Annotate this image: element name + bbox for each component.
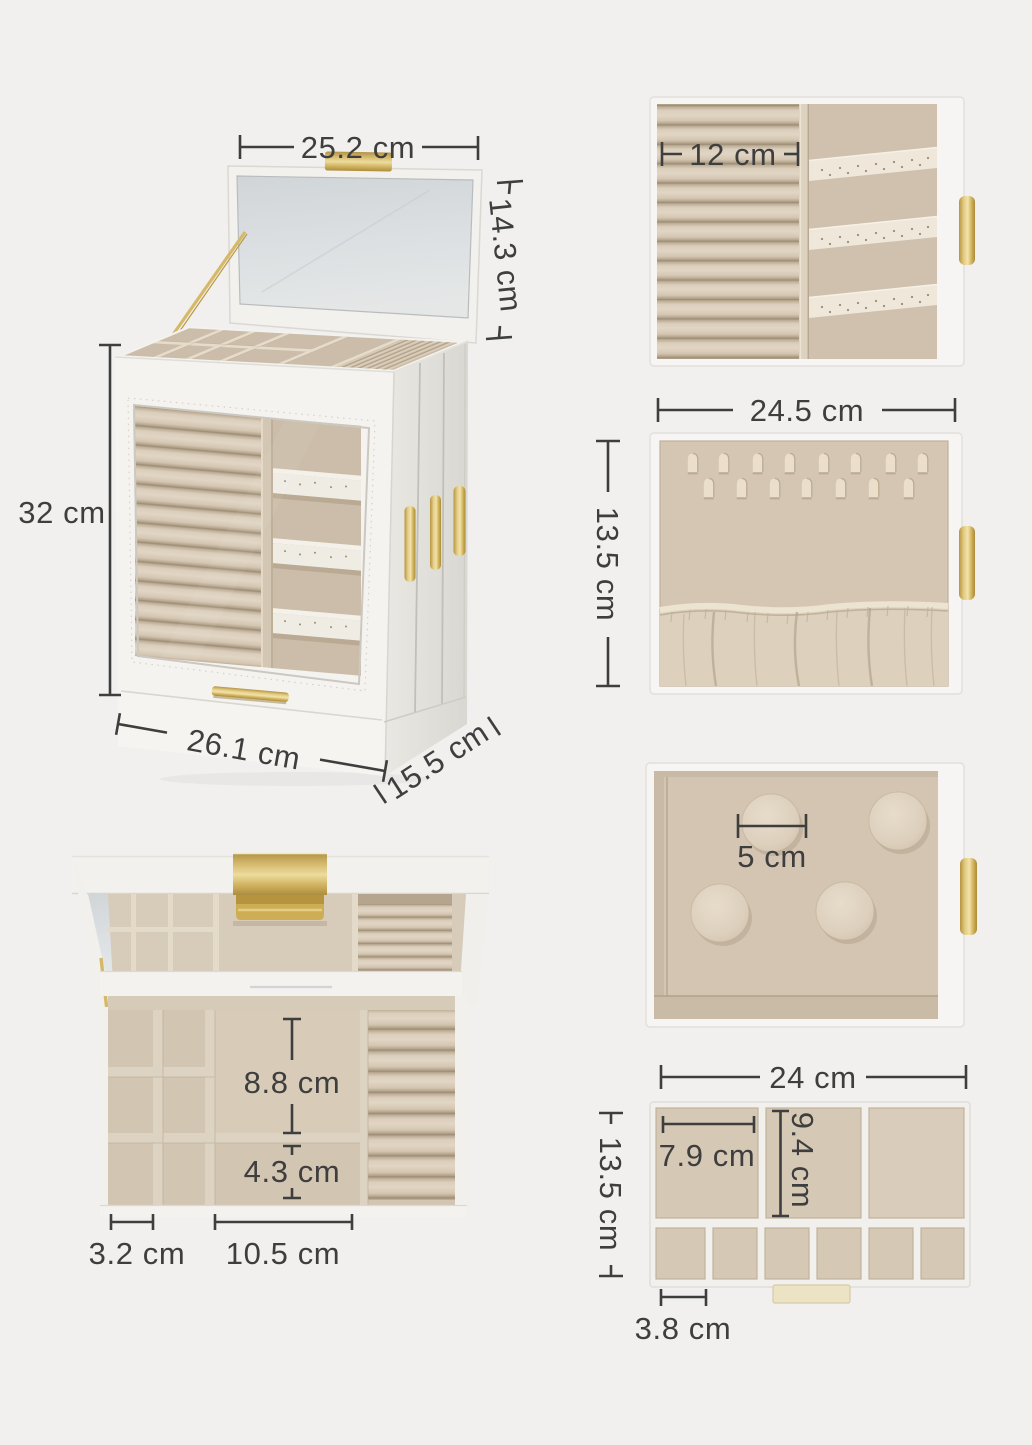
svg-text:24.5 cm: 24.5 cm bbox=[750, 393, 864, 428]
svg-text:32 cm: 32 cm bbox=[18, 495, 105, 530]
svg-text:8.8 cm: 8.8 cm bbox=[244, 1065, 341, 1100]
svg-text:13.5 cm: 13.5 cm bbox=[593, 1137, 628, 1251]
svg-text:7.9 cm: 7.9 cm bbox=[659, 1138, 756, 1173]
svg-text:9.4 cm: 9.4 cm bbox=[785, 1112, 820, 1209]
svg-text:24 cm: 24 cm bbox=[769, 1060, 856, 1095]
svg-text:10.5 cm: 10.5 cm bbox=[226, 1236, 340, 1271]
svg-text:4.3 cm: 4.3 cm bbox=[244, 1154, 341, 1189]
svg-text:25.2 cm: 25.2 cm bbox=[301, 130, 415, 165]
svg-text:3.8 cm: 3.8 cm bbox=[635, 1311, 732, 1346]
svg-text:5 cm: 5 cm bbox=[737, 839, 807, 874]
svg-text:12 cm: 12 cm bbox=[689, 137, 776, 172]
svg-text:13.5 cm: 13.5 cm bbox=[590, 507, 625, 621]
svg-text:3.2 cm: 3.2 cm bbox=[89, 1236, 186, 1271]
